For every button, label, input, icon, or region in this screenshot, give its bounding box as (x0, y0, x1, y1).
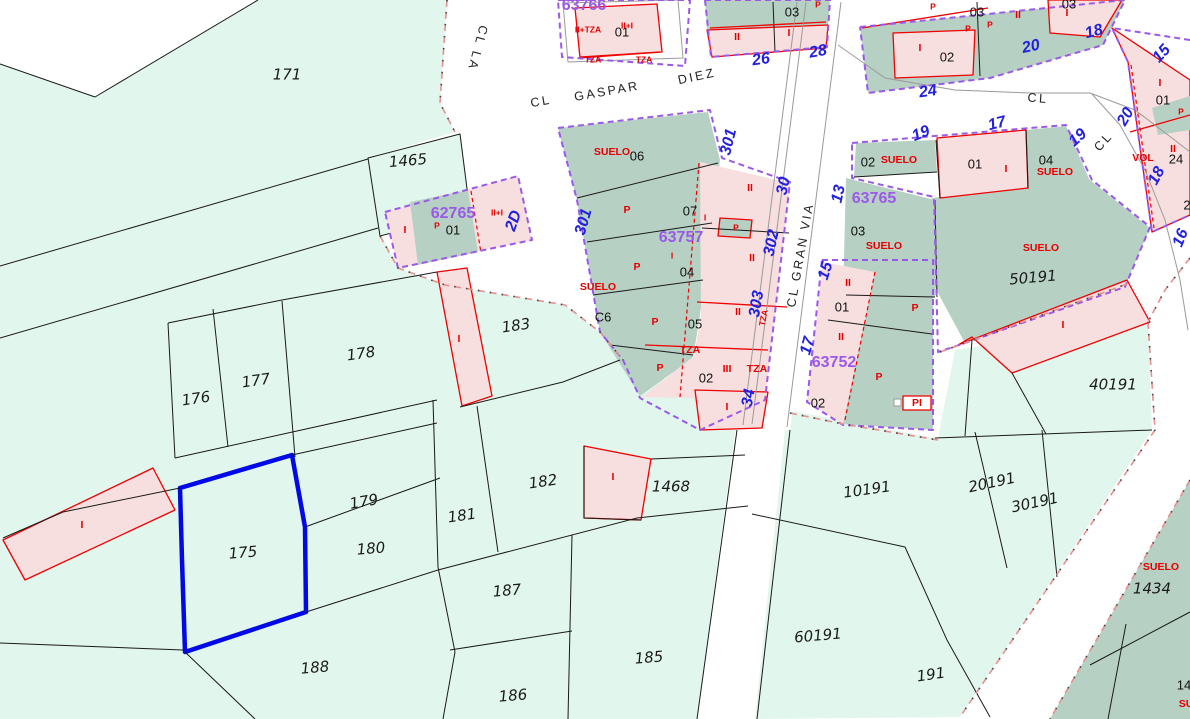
building-number-label-07: 07 (683, 203, 697, 218)
construction-code-label-i: I (458, 333, 461, 345)
building-number-label-2: 2 (1183, 197, 1190, 212)
construction-code-label-p: P (434, 220, 440, 230)
gray-square (894, 399, 901, 406)
street-name-label-cl: CL (1027, 91, 1049, 106)
construction-code-label-tza: TZA (585, 54, 602, 64)
construction-code-label-p: P (733, 222, 739, 232)
construction-code-label-suelo: SUELO (881, 154, 917, 166)
parcel-number-label-175: 175 (228, 542, 258, 562)
parcel-number-label-1468: 1468 (652, 478, 690, 496)
construction-code-label-vol: VOL (1132, 152, 1154, 164)
construction-code-label-p: P (815, 0, 821, 9)
street-number-label-34: 34 (739, 388, 759, 409)
block-62765-green[interactable] (410, 190, 478, 265)
street-number-label-28: 28 (807, 42, 829, 62)
parcel-number-label-1434: 1434 (1133, 580, 1171, 598)
construction-code-label-ii+i: II+I (491, 207, 503, 217)
construction-code-label-ii: II (838, 331, 844, 343)
block-number-label-63766: 63766 (562, 0, 607, 14)
construction-code-label-ii: II (845, 277, 851, 289)
parcel-63765-01[interactable] (937, 130, 1028, 198)
construction-code-label-ii: II (734, 31, 740, 43)
building-number-label-03: 03 (851, 223, 865, 238)
building-number-label-c6: C6 (595, 309, 612, 324)
construction-code-label-ii: II (747, 182, 753, 194)
construction-code-label-i: I (404, 224, 407, 236)
construction-code-label-suelo: SUELO (1037, 166, 1073, 178)
construction-code-label-suelo: SUELO (594, 146, 630, 158)
building-number-label-14: 14 (1177, 677, 1190, 692)
parcel-number-label-188: 188 (300, 657, 330, 677)
street-number-label-24: 24 (917, 82, 938, 101)
building-number-label-03: 03 (785, 4, 799, 19)
building-number-label-04: 04 (680, 264, 694, 279)
block-number-label-63765: 63765 (852, 190, 897, 207)
street-number-label-30: 30 (774, 175, 794, 196)
cadastral-map-svg: CL LACLGASPARDIEZCL GRAN VIACLCL63766627… (0, 0, 1190, 719)
construction-code-label-p: P (656, 362, 663, 374)
construction-code-label-suelo: SUELO (1143, 561, 1179, 573)
construction-code-label-i: I (1159, 77, 1162, 89)
construction-code-label-ii: II (1015, 9, 1021, 21)
construction-code-label-p: P (965, 23, 971, 33)
building-number-label-02: 02 (699, 370, 713, 385)
building-number-label-01: 01 (1156, 92, 1170, 107)
building-number-label-02: 02 (940, 49, 954, 64)
parcel-number-label-1465: 1465 (388, 150, 428, 171)
construction-code-label-p: P (1178, 106, 1184, 116)
building-number-label-01: 01 (446, 222, 460, 237)
building-number-label-03: 03 (1062, 0, 1076, 11)
parcel-number-label-180: 180 (356, 538, 386, 558)
construction-code-label-pi: PI (912, 397, 922, 409)
construction-code-label-ii: II (1170, 143, 1176, 155)
construction-code-label-i: I (671, 250, 673, 260)
parcel-number-label-185: 185 (634, 647, 664, 667)
construction-code-label-i: I (612, 471, 615, 483)
building-number-label-03: 03 (970, 4, 984, 19)
construction-code-label-suelo: SUELO (580, 281, 616, 293)
block-number-label-63757: 63757 (659, 229, 704, 246)
construction-code-label-ii+i: II+I (621, 20, 633, 30)
construction-code-label-i: I (1062, 319, 1065, 331)
building-number-label-01: 01 (835, 299, 849, 314)
construction-code-label-i: I (726, 401, 729, 413)
parcel-number-label-186: 186 (498, 685, 528, 705)
construction-code-label-i: I (919, 42, 922, 54)
cadastral-map: CL LACLGASPARDIEZCL GRAN VIACLCL63766627… (0, 0, 1190, 719)
building-number-label-06: 06 (630, 148, 644, 163)
construction-code-label-p: P (875, 371, 882, 383)
construction-code-label-i: I (1005, 163, 1008, 175)
construction-code-label-p: P (930, 1, 936, 11)
parcel-number-label-171: 171 (273, 66, 302, 84)
construction-code-label-su: SU (1179, 698, 1190, 710)
building-number-label-01: 01 (968, 156, 982, 171)
construction-code-label-p: P (911, 302, 918, 314)
construction-code-label-p: P (633, 261, 640, 273)
building-number-label-05: 05 (688, 316, 702, 331)
construction-code-label-suelo: SUELO (866, 240, 902, 252)
building-number-label-02: 02 (861, 154, 875, 169)
construction-code-label-i: I (788, 27, 791, 39)
construction-code-label-suelo: SUELO (1023, 242, 1059, 254)
parcel-number-label-187: 187 (492, 580, 523, 600)
construction-code-label-p: P (987, 19, 993, 29)
construction-code-label-ii+tza: II+TZA (575, 24, 601, 34)
construction-code-label-i: I (704, 212, 706, 222)
construction-code-label-tza: TZA (680, 344, 701, 356)
construction-code-label-tza: TZA (747, 363, 768, 375)
building-24-02[interactable] (893, 30, 975, 78)
construction-code-label-i: I (1066, 7, 1069, 19)
construction-code-label-p: P (623, 204, 630, 216)
parcel-number-label-40191: 40191 (1089, 376, 1137, 394)
building-number-label-02: 02 (811, 395, 825, 410)
construction-code-label-i: I (81, 519, 84, 531)
street-number-label-13: 13 (829, 183, 849, 204)
construction-code-label-iii: III (723, 363, 732, 375)
rural-building-1468[interactable] (584, 446, 651, 520)
construction-code-label-p: P (651, 316, 658, 328)
block-number-label-63752: 63752 (812, 354, 857, 371)
street-number-label-26: 26 (750, 50, 771, 69)
construction-code-label-ii: II (749, 252, 755, 264)
construction-code-label-tza: TZA (636, 54, 653, 64)
construction-code-label-ii: II (735, 306, 741, 318)
